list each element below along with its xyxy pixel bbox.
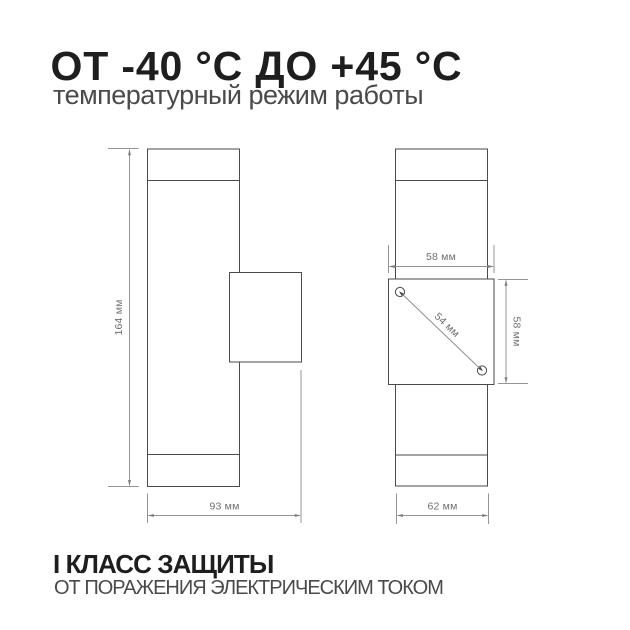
svg-text:58 мм: 58 мм xyxy=(511,316,523,346)
svg-text:164 мм: 164 мм xyxy=(113,299,125,335)
svg-text:62 мм: 62 мм xyxy=(427,501,457,513)
svg-text:58 мм: 58 мм xyxy=(426,251,456,263)
svg-text:93 мм: 93 мм xyxy=(209,501,239,513)
